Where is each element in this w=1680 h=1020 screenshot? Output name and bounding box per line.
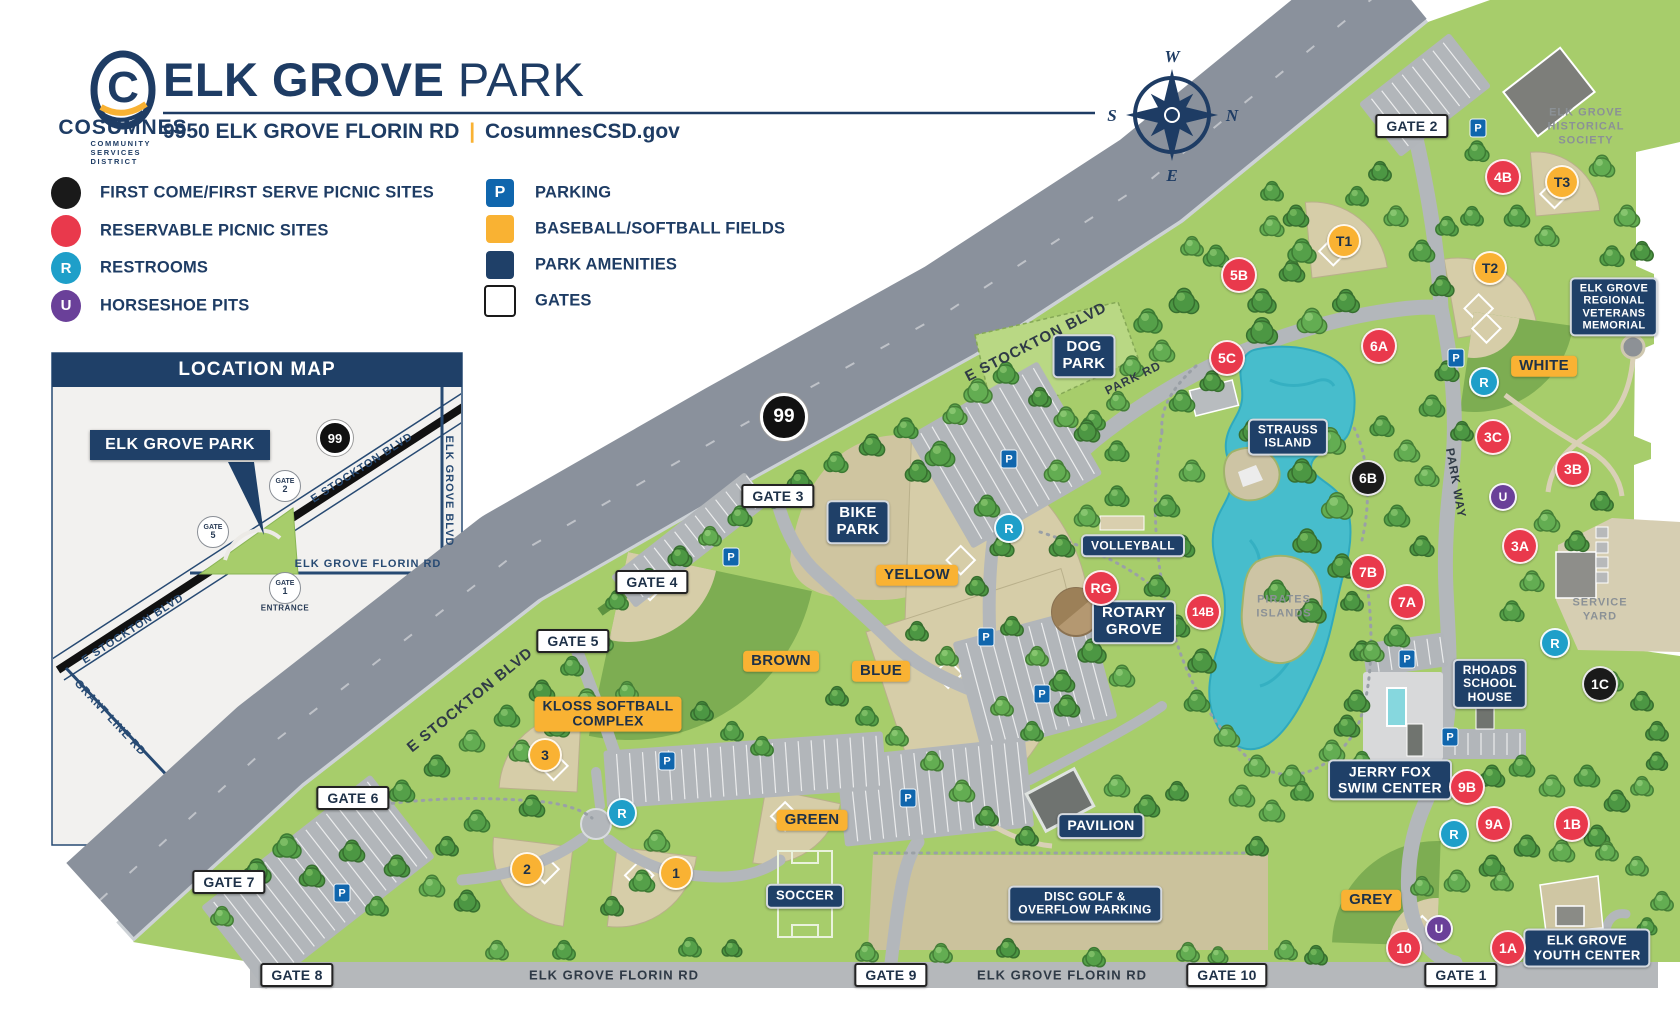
reservable-site-1A: 1A	[1490, 930, 1526, 966]
horseshoe-pit-icon: U	[1425, 915, 1453, 943]
compass-s: S	[1107, 106, 1116, 126]
reservable-site-6A: 6A	[1361, 328, 1397, 364]
parking-icon: P	[723, 548, 740, 567]
reservable-site-4B: 4B	[1485, 159, 1521, 195]
legend-label: BASEBALL/SOFTBALL FIELDS	[535, 220, 785, 239]
field-label-kloss: KLOSS SOFTBALLCOMPLEX	[535, 697, 682, 732]
gate-gate-8: GATE 8	[260, 963, 333, 987]
reservable-site-9B: 9B	[1449, 769, 1485, 805]
park-map-canvas: C COSUMNES COMMUNITY SERVICES DISTRICT E…	[0, 0, 1680, 1020]
road-label: ELK GROVE FLORIN RD	[529, 968, 699, 983]
legend-navy-square	[486, 251, 514, 279]
annotation-service-yard: SERVICEYARD	[1572, 596, 1627, 624]
first-come-site-6B: 6B	[1350, 460, 1386, 496]
location-map-title-bar: LOCATION MAP	[52, 353, 462, 387]
legend-label: PARK AMENITIES	[535, 256, 677, 275]
inset-gate-2: GATE2	[269, 470, 301, 502]
gate-gate-5: GATE 5	[536, 629, 609, 653]
restroom-icon: R	[994, 513, 1024, 543]
gate-gate-4: GATE 4	[615, 570, 688, 594]
reservable-site-14B: 14B	[1185, 594, 1221, 630]
field-marker-2: 2	[510, 852, 544, 886]
compass-w: W	[1164, 47, 1179, 67]
amenity-rotary-grove: ROTARYGROVE	[1092, 600, 1176, 644]
parking-icon: P	[1034, 685, 1051, 704]
field-label-brown: BROWN	[743, 651, 819, 672]
amenity-bike-park: BIKEPARK	[827, 500, 890, 544]
field-marker-T2: T2	[1473, 251, 1507, 285]
field-marker-T3: T3	[1545, 165, 1579, 199]
annotation-historical-society: ELK GROVEHISTORICALSOCIETY	[1547, 106, 1624, 147]
legend-label: RESTROOMS	[100, 259, 208, 278]
field-marker-3: 3	[528, 738, 562, 772]
legend-restroom-circle: R	[51, 252, 81, 284]
legend-red-circle	[51, 215, 81, 247]
field-label-grey: GREY	[1341, 890, 1401, 911]
inset-gate-1: GATE1	[269, 572, 301, 604]
reservable-site-7B: 7B	[1350, 554, 1386, 590]
reservable-site-RG: RG	[1083, 570, 1119, 606]
amenity-strauss-island: STRAUSSISLAND	[1248, 419, 1328, 456]
legend-yellow-square	[486, 215, 514, 243]
compass-n: N	[1226, 106, 1238, 126]
field-marker-T1: T1	[1327, 224, 1361, 258]
road-label: E STOCKTON BLVD	[404, 644, 536, 756]
parking-icon: P	[1470, 119, 1487, 138]
inset-highway-badge: 99	[317, 420, 353, 456]
parking-icon: P	[978, 628, 995, 647]
road-label: ELK GROVE FLORIN RD	[977, 968, 1147, 983]
reservable-site-3C: 3C	[1475, 419, 1511, 455]
reservable-site-5C: 5C	[1209, 340, 1245, 376]
legend-label: RESERVABLE PICNIC SITES	[100, 221, 329, 240]
reservable-site-5B: 5B	[1221, 257, 1257, 293]
horseshoe-pit-icon: U	[1489, 483, 1517, 511]
gate-gate-10: GATE 10	[1186, 963, 1267, 987]
highway-badge-99: 99	[760, 393, 808, 441]
restroom-icon: R	[1469, 367, 1499, 397]
amenity-veterans-memorial: ELK GROVEREGIONALVETERANSMEMORIAL	[1570, 277, 1658, 336]
reservable-site-9A: 9A	[1476, 806, 1512, 842]
inset-entrance-label: ENTRANCE	[261, 604, 309, 613]
gate-gate-7: GATE 7	[192, 870, 265, 894]
legend-horseshoe-circle: U	[51, 290, 81, 322]
inset-road-label: E STOCKTON BLVD	[80, 592, 186, 667]
legend-black-circle	[51, 177, 81, 209]
inset-road-label: ELK GROVE BLVD	[443, 436, 455, 547]
reservable-site-10: 10	[1386, 930, 1422, 966]
gate-gate-9: GATE 9	[854, 963, 927, 987]
parking-icon: P	[659, 752, 676, 771]
reservable-site-7A: 7A	[1389, 584, 1425, 620]
reservable-site-3B: 3B	[1555, 451, 1591, 487]
first-come-site-1C: 1C	[1582, 666, 1618, 702]
legend-parking-square: P	[486, 179, 514, 207]
annotation-pirates-islands: PIRATESISLANDS	[1256, 593, 1311, 621]
field-label-yellow: YELLOW	[876, 565, 958, 586]
field-marker-1: 1	[659, 856, 693, 890]
parking-icon: P	[1442, 728, 1459, 747]
parking-icon: P	[900, 789, 917, 808]
inset-road-label: GRANT LINE RD	[72, 678, 148, 759]
restroom-icon: R	[1439, 819, 1469, 849]
legend-label: GATES	[535, 292, 592, 311]
legend-label: PARKING	[535, 184, 611, 203]
amenity-elk-grove-youth-center: ELK GROVEYOUTH CENTER	[1523, 928, 1650, 967]
amenity-soccer: SOCCER	[766, 884, 844, 909]
parking-icon: P	[1399, 650, 1416, 669]
amenity-pavilion: PAVILION	[1057, 813, 1144, 839]
field-label-blue: BLUE	[852, 661, 910, 682]
reservable-site-1B: 1B	[1554, 806, 1590, 842]
label-layer: FIRST COME/FIRST SERVE PICNIC SITESRESER…	[0, 0, 1680, 1020]
restroom-icon: R	[607, 798, 637, 828]
amenity-volleyball: VOLLEYBALL	[1081, 534, 1185, 557]
road-label: PARK WAY	[1443, 447, 1469, 519]
amenity-disc-golf: DISC GOLF &OVERFLOW PARKING	[1008, 886, 1162, 923]
amenity-dog-park: DOGPARK	[1053, 334, 1116, 378]
legend-label: HORSESHOE PITS	[100, 296, 250, 315]
amenity-jerry-fox-swim-center: JERRY FOXSWIM CENTER	[1328, 759, 1452, 800]
inset-road-label: ELK GROVE FLORIN RD	[295, 558, 442, 570]
gate-gate-6: GATE 6	[316, 786, 389, 810]
gate-gate-3: GATE 3	[741, 484, 814, 508]
gate-gate-2: GATE 2	[1375, 114, 1448, 138]
parking-icon: P	[1001, 450, 1018, 469]
location-map-title: LOCATION MAP	[178, 359, 335, 381]
gate-gate-1: GATE 1	[1424, 963, 1497, 987]
field-label-green: GREEN	[777, 810, 848, 831]
parking-icon: P	[334, 884, 351, 903]
restroom-icon: R	[1540, 628, 1570, 658]
inset-gate-5: GATE5	[197, 516, 229, 548]
compass-e: E	[1166, 166, 1177, 186]
legend-label: FIRST COME/FIRST SERVE PICNIC SITES	[100, 184, 434, 203]
reservable-site-3A: 3A	[1502, 528, 1538, 564]
inset-park-label: ELK GROVE PARK	[90, 430, 270, 460]
inset-park-label-text: ELK GROVE PARK	[105, 436, 255, 454]
field-label-white: WHITE	[1511, 356, 1577, 377]
amenity-rhoads-school-house: RHOADSSCHOOLHOUSE	[1453, 659, 1527, 709]
parking-icon: P	[1448, 349, 1465, 368]
legend-white-square	[484, 285, 516, 317]
